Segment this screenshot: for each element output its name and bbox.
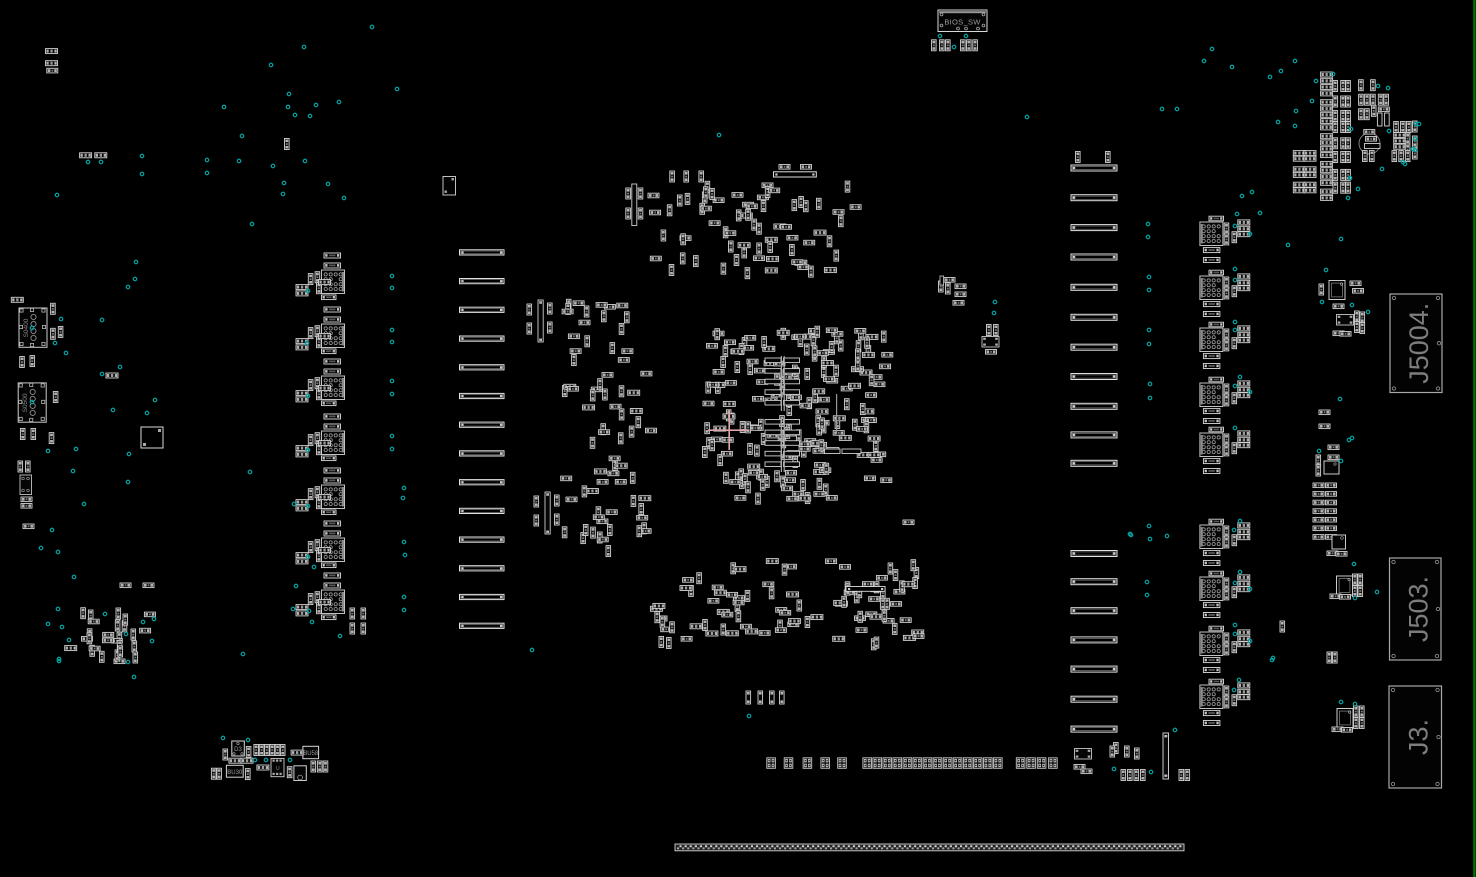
svg-text:S0500: S0500 (22, 393, 29, 412)
svg-text:BU30: BU30 (227, 770, 243, 776)
svg-text:S0400: S0400 (23, 318, 30, 337)
svg-text:D3: D3 (234, 747, 242, 753)
svg-text:U: U (276, 766, 280, 772)
svg-text:J3.: J3. (1403, 719, 1433, 755)
svg-text:J503.: J503. (1403, 576, 1433, 642)
svg-text:BIOS_SW: BIOS_SW (944, 18, 981, 27)
svg-text:BU58: BU58 (303, 751, 319, 757)
svg-text:J5004.: J5004. (1404, 303, 1434, 384)
